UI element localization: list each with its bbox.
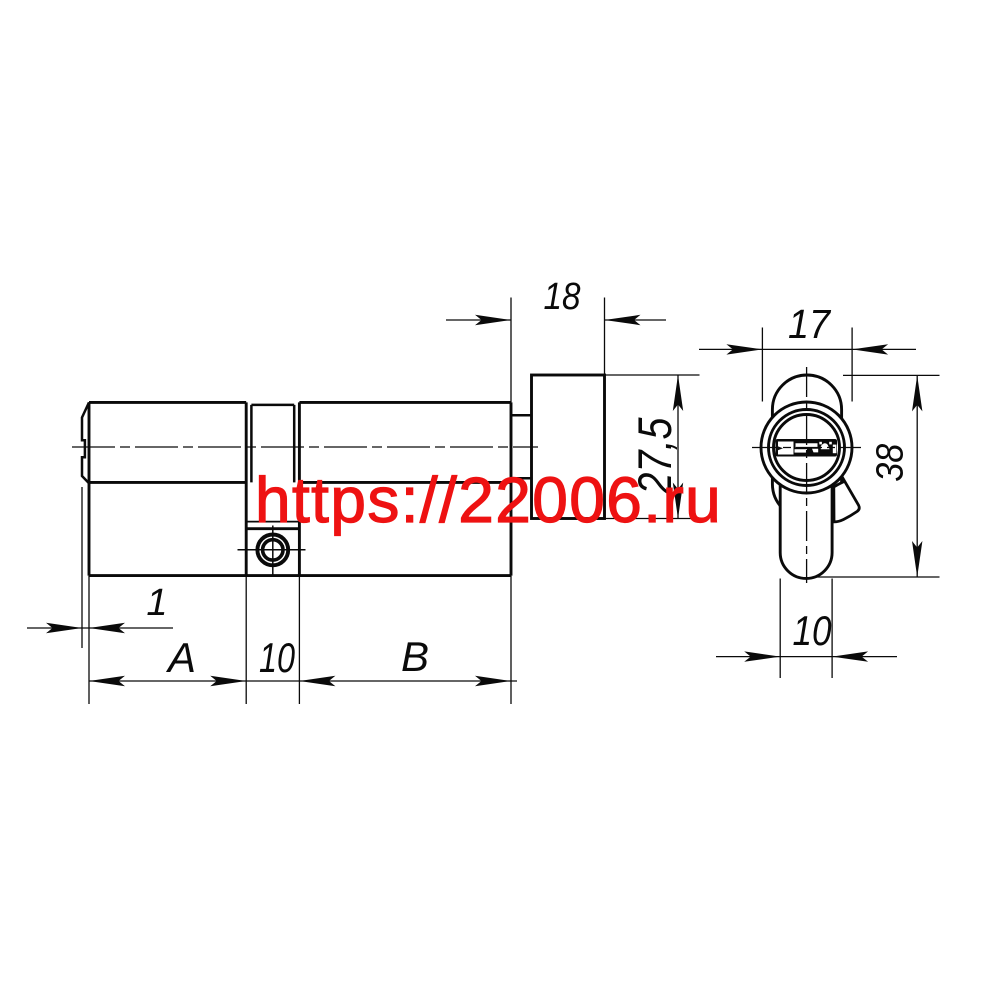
svg-text:10: 10 — [259, 634, 295, 681]
svg-text:10: 10 — [793, 607, 833, 654]
svg-text:1: 1 — [146, 582, 167, 624]
svg-text:B: B — [401, 633, 429, 680]
svg-text:38: 38 — [870, 444, 912, 482]
svg-text:A: A — [165, 634, 196, 681]
svg-text:17: 17 — [788, 301, 832, 347]
svg-text:18: 18 — [544, 276, 581, 318]
svg-text:https://22006.ru: https://22006.ru — [255, 464, 722, 536]
